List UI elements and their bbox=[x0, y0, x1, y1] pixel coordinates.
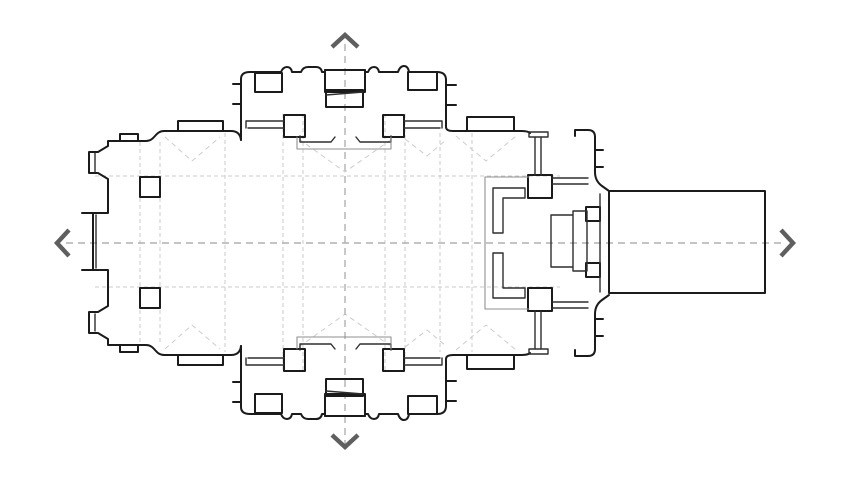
floor-plan-drawing bbox=[0, 0, 847, 495]
paper-background bbox=[0, 0, 847, 495]
floor-plan-svg bbox=[0, 0, 847, 495]
